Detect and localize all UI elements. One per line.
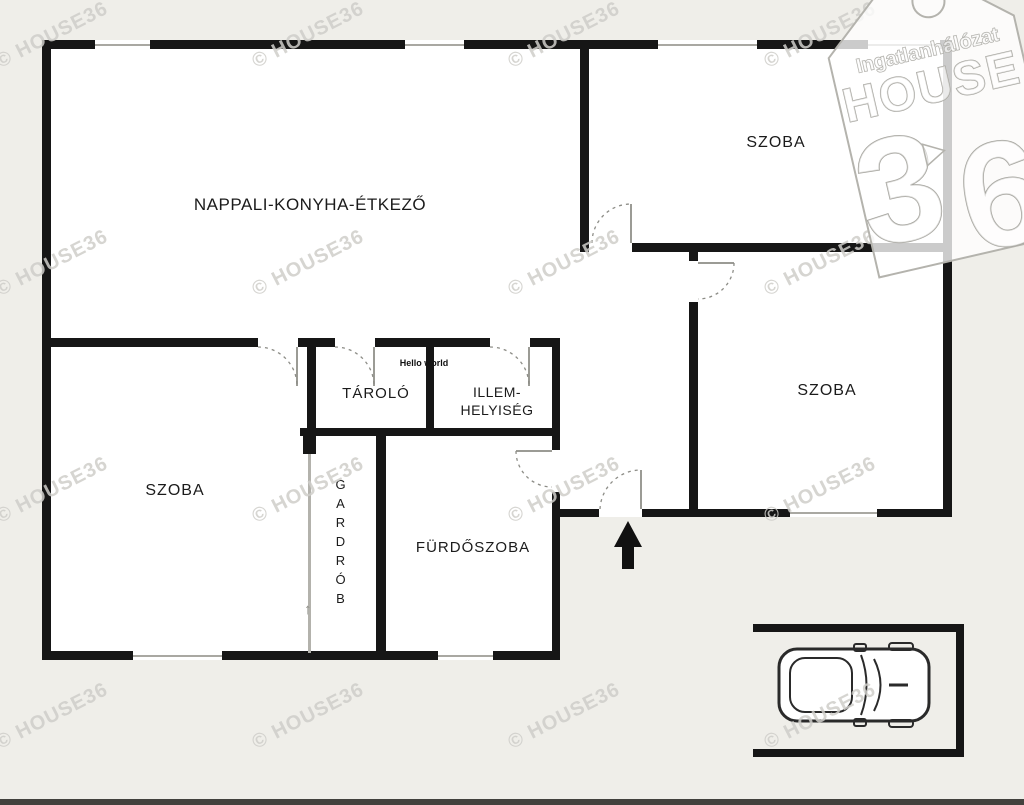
door-leaves xyxy=(297,204,734,509)
room-label-furdoszoba: FÜRDŐSZOBA xyxy=(398,539,548,556)
room-label-szoba-left: SZOBA xyxy=(115,482,235,500)
entrance-arrow-icon xyxy=(614,521,642,569)
floor-plan: Hello world xyxy=(0,0,1024,805)
room-label-gardrob: GARDRÓB xyxy=(333,477,348,607)
room-label-tarolo: TÁROLÓ xyxy=(316,385,436,402)
room-label-illem-line2: HELYISÉG xyxy=(461,402,534,418)
room-label-illem-line1: ILLEM- xyxy=(473,384,521,400)
room-label-szoba-right: SZOBA xyxy=(767,382,887,400)
gardrob-direction-arrow-icon: ↑ xyxy=(304,602,312,617)
room-label-illemhelyiseg: ILLEM- HELYISÉG xyxy=(437,383,557,419)
room-label-szoba-top: SZOBA xyxy=(716,134,836,152)
door-swing-arcs xyxy=(258,204,734,509)
room-label-nappali: NAPPALI-KONYHA-ÉTKEZŐ xyxy=(150,195,470,215)
car-icon xyxy=(779,643,929,727)
image-bottom-edge xyxy=(0,799,1024,805)
